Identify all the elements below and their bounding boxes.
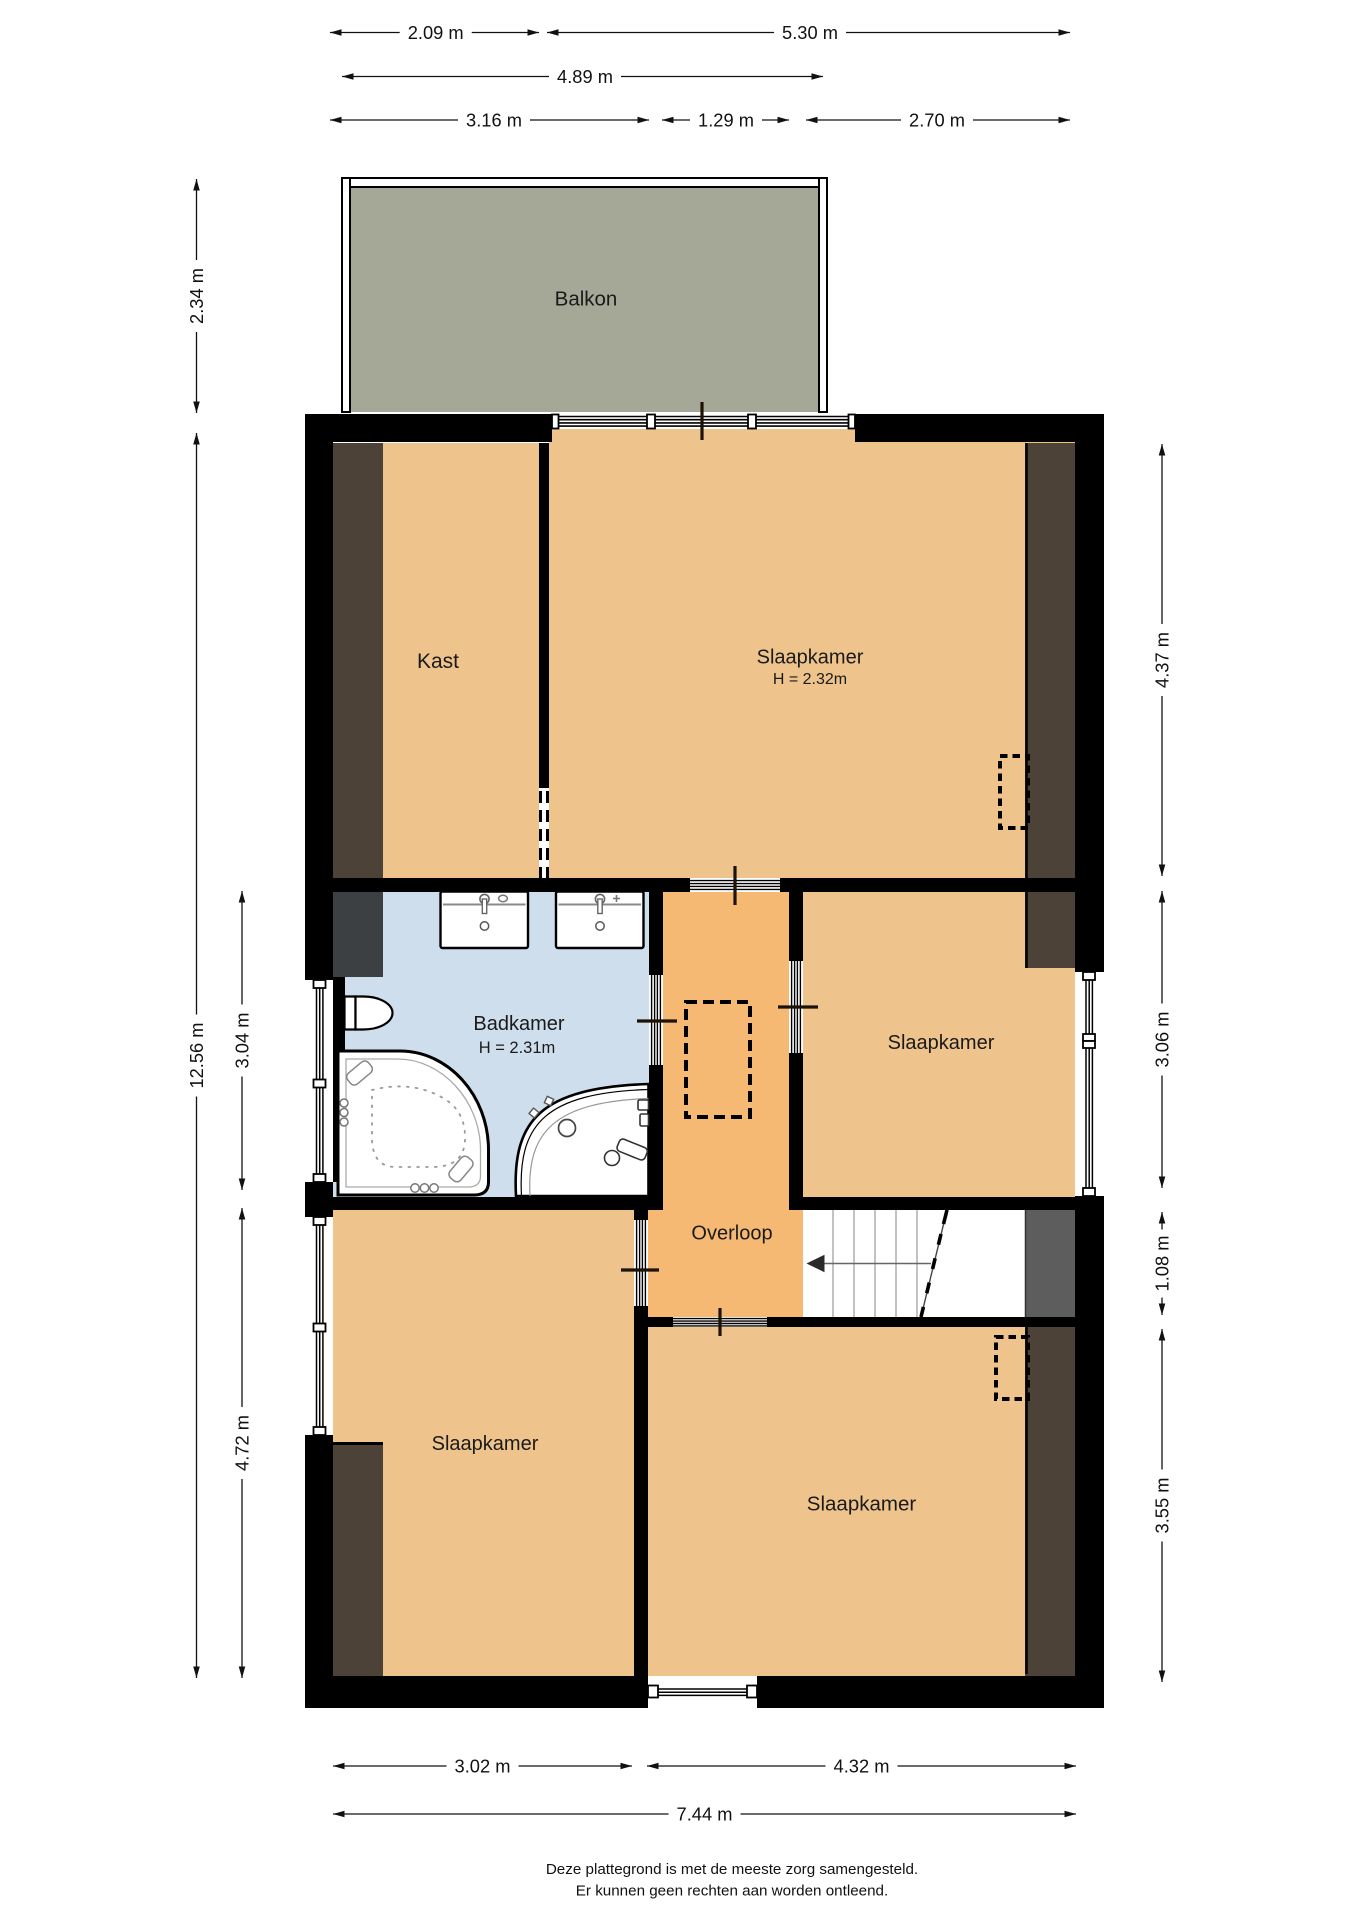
- svg-text:1.29 m: 1.29 m: [698, 110, 754, 131]
- svg-text:4.72 m: 4.72 m: [232, 1415, 253, 1471]
- svg-text:1.08 m: 1.08 m: [1152, 1236, 1173, 1292]
- svg-text:5.30 m: 5.30 m: [782, 22, 838, 43]
- svg-text:7.44 m: 7.44 m: [677, 1804, 733, 1825]
- svg-text:3.02 m: 3.02 m: [455, 1756, 511, 1777]
- svg-text:Slaapkamer: Slaapkamer: [888, 1032, 995, 1054]
- svg-text:3.16 m: 3.16 m: [466, 110, 522, 131]
- svg-text:4.37 m: 4.37 m: [1152, 632, 1173, 688]
- svg-text:Deze plattegrond is met de mee: Deze plattegrond is met de meeste zorg s…: [546, 1861, 918, 1878]
- svg-text:2.09 m: 2.09 m: [408, 22, 464, 43]
- svg-text:H = 2.31m: H = 2.31m: [479, 1039, 556, 1057]
- svg-text:3.06 m: 3.06 m: [1152, 1012, 1173, 1068]
- svg-text:Slaapkamer: Slaapkamer: [432, 1433, 539, 1455]
- svg-text:3.55 m: 3.55 m: [1152, 1478, 1173, 1534]
- svg-text:Badkamer: Badkamer: [473, 1013, 564, 1035]
- svg-text:2.34 m: 2.34 m: [186, 268, 207, 324]
- svg-text:3.04 m: 3.04 m: [232, 1013, 253, 1069]
- svg-text:H = 2.32m: H = 2.32m: [773, 671, 847, 688]
- svg-text:Er kunnen geen rechten aan wor: Er kunnen geen rechten aan worden ontlee…: [576, 1883, 888, 1900]
- svg-text:4.32 m: 4.32 m: [834, 1756, 890, 1777]
- svg-text:Slaapkamer: Slaapkamer: [757, 647, 864, 669]
- svg-text:Overloop: Overloop: [691, 1223, 772, 1245]
- svg-text:Slaapkamer: Slaapkamer: [807, 1493, 917, 1516]
- svg-text:Balkon: Balkon: [555, 288, 618, 311]
- svg-text:12.56 m: 12.56 m: [186, 1022, 207, 1088]
- svg-text:Kast: Kast: [417, 650, 459, 673]
- svg-text:4.89 m: 4.89 m: [557, 66, 613, 87]
- svg-text:2.70 m: 2.70 m: [909, 110, 965, 131]
